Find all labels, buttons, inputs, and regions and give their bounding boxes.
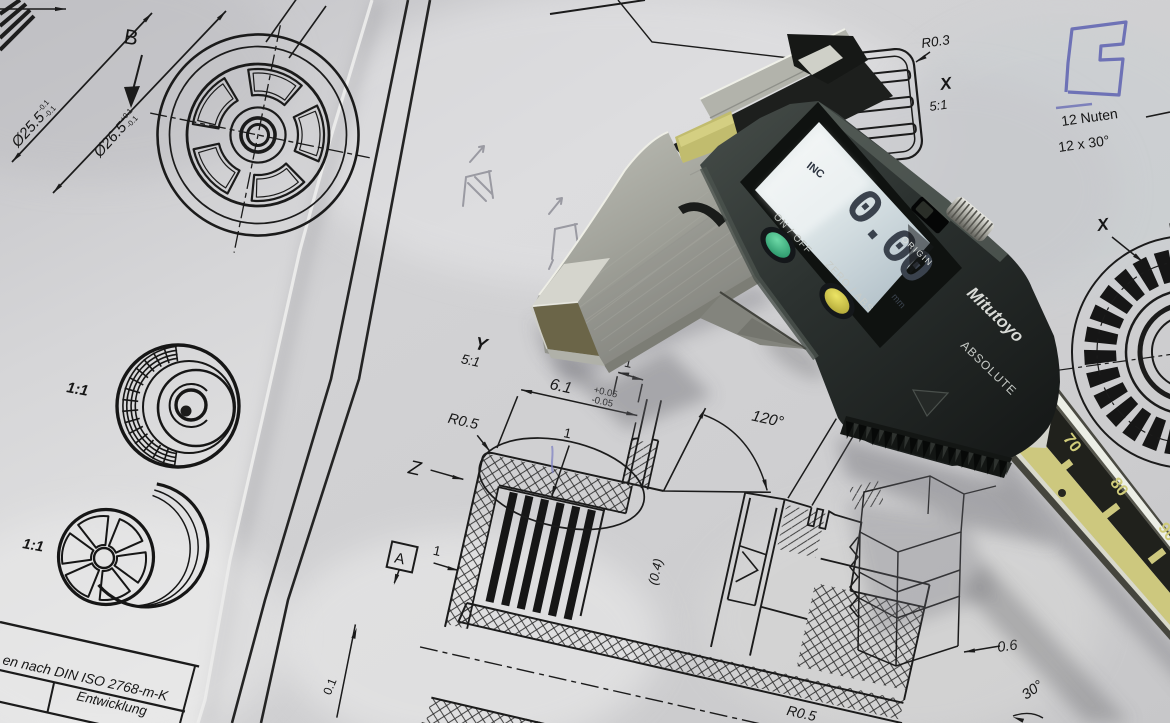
svg-text:5:1: 5:1 [928, 97, 948, 114]
